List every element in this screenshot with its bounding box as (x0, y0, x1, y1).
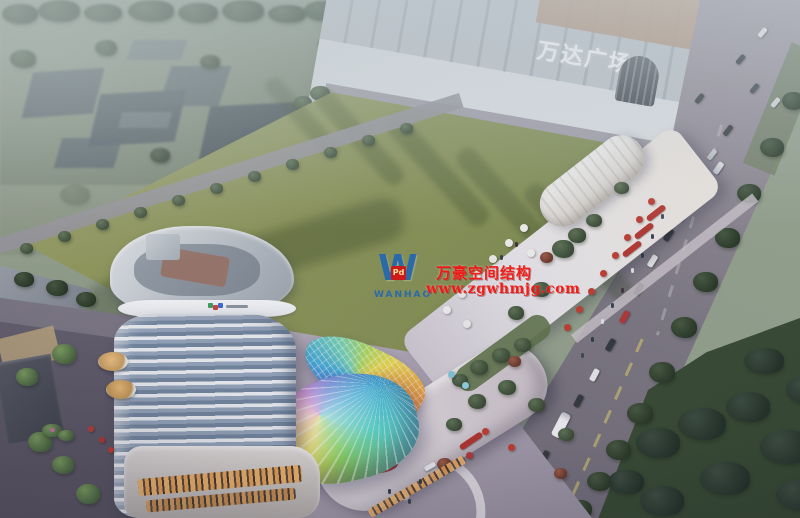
watermark-company: 万豪空间结构 (436, 262, 532, 283)
watermark: W Pd WANHAO 万豪空间结构 www.zgwhmjg.com (370, 246, 630, 310)
watermark-logo-name: WANHAO (374, 290, 432, 300)
watermark-logo-badge: Pd (391, 266, 406, 280)
rendering-canvas: 万达广场 (0, 0, 800, 518)
watermark-url: www.zgwhmjg.com (426, 281, 580, 297)
